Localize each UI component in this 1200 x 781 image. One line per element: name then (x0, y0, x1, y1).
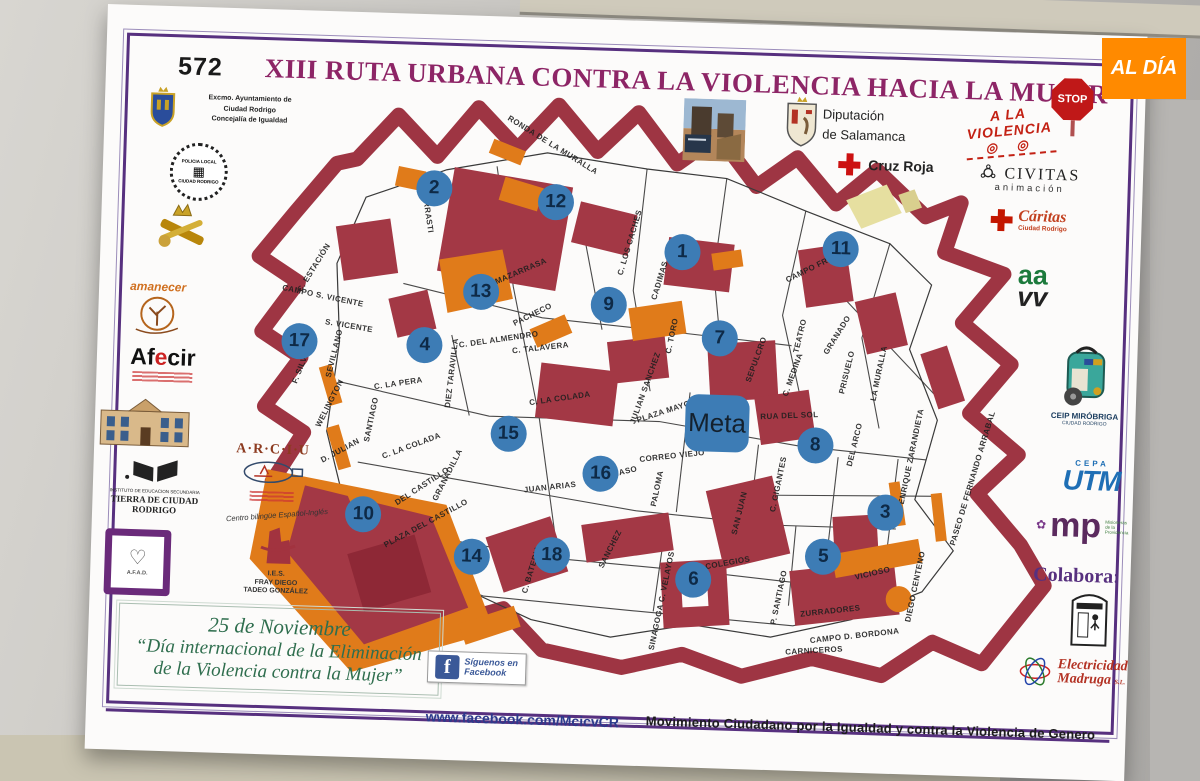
checkpoint-number: 15 (497, 422, 519, 445)
city-photo-thumbnail (681, 98, 747, 167)
caritas-cross-icon (990, 209, 1013, 232)
ship-in-bottle-icon (240, 457, 305, 485)
electricidad-madruga-logo: Electricidad Madruga S.L. (1017, 655, 1128, 690)
afad-label: A.F.A.D. (127, 570, 148, 577)
colabora-label: Colabora: (1033, 563, 1120, 588)
meta-finish-marker: Meta (684, 394, 750, 453)
amanecer-tree-icon (134, 295, 181, 336)
electricidad-line2: Madruga (1057, 671, 1111, 688)
checkpoint-number: 3 (880, 502, 891, 524)
colabora-heading: Colabora: (1026, 563, 1127, 589)
red-cross-icon (838, 153, 861, 176)
atom-icon (1017, 655, 1053, 688)
table-surface-right (1150, 100, 1200, 781)
facebook-icon: f (435, 655, 460, 680)
checkpoint-number: 16 (590, 462, 612, 485)
aldia-label: AL DÍA (1111, 57, 1177, 80)
checkpoint-number: 8 (810, 434, 821, 456)
caritas-line1: Cáritas (1018, 209, 1067, 227)
aavv-logo: aa vv (992, 264, 1073, 310)
stop-sign-post (1070, 120, 1075, 136)
facebook-follow-badge: f Síguenos en Facebook (427, 650, 526, 685)
checkpoint-number: 6 (688, 569, 699, 591)
school-building-logo (94, 396, 196, 455)
ceip-mirobriga-logo: CEIP MIRÓBRIGA CIUDAD RODRIGO (1045, 344, 1126, 429)
poster-number: 572 (178, 52, 224, 82)
guardia-civil-emblem (148, 198, 214, 269)
open-book-icon (123, 457, 188, 485)
mp-smallprint: Misioneras de la Providencia (1105, 519, 1132, 536)
caritas-logo: Cáritas Ciudad Rodrigo (963, 207, 1094, 235)
afecir-smallprint (132, 371, 192, 383)
ayuntamiento-label: Excmo. Ayuntamiento de Ciudad Rodrigo Co… (184, 92, 315, 128)
checkpoint-number: 14 (461, 545, 483, 568)
mp-misioneras-logo: ✿ mp Misioneras de la Providencia (1036, 511, 1133, 541)
meta-label: Meta (688, 407, 747, 440)
caritas-line2: Ciudad Rodrigo (1018, 225, 1067, 234)
checkpoint-number: 4 (419, 334, 430, 356)
policia-local-badge: POLICIA LOCAL ▦ CIUDAD RODRIGO (166, 142, 232, 202)
kiosk-logo (1062, 590, 1116, 655)
policia-line2: CIUDAD RODRIGO (178, 179, 218, 185)
utm-label: UTM (1055, 467, 1128, 494)
amanecer-label: amanecer (130, 279, 186, 295)
afecir-logo: Afecir (107, 342, 218, 384)
checkpoint-number: 13 (470, 280, 492, 303)
checkpoint-number: 2 (429, 177, 440, 199)
ayuntamiento-crest (144, 85, 181, 133)
photo-of-map-poster: { "photo": { "watermark": "AL DÍA" }, "p… (0, 0, 1200, 781)
amanecer-logo: amanecer (111, 276, 203, 343)
checkpoint-number: 11 (831, 238, 852, 261)
afecir-part1: Af (130, 343, 155, 370)
diputacion-label: Diputación de Salamanca (822, 105, 933, 147)
arciu-logo: A·R·C·I·U (228, 441, 316, 503)
arciu-smallprint (249, 491, 293, 502)
checkpoint-number: 10 (352, 503, 374, 526)
aldia-watermark: AL DÍA (1102, 38, 1186, 99)
date-announcement: 25 de Noviembre “Día internacional de la… (117, 603, 441, 696)
ies-fray-diego-logo: I.E.S. FRAY DIEGO TADEO GONZÁLEZ (236, 522, 318, 597)
checkpoint-number: 18 (541, 544, 563, 567)
electricidad-line3: S.L. (1114, 679, 1125, 686)
facebook-line2: Facebook (464, 668, 518, 680)
ies-tierra-logo: INSTITUTO DE EDUCACION SECUNDARIA TIERRA… (98, 456, 212, 517)
checkpoint-number: 7 (714, 327, 725, 349)
heart-icon: ♡ (128, 547, 147, 571)
diputacion-crest (781, 95, 823, 154)
ies-tierra-line2: TIERRA DE CIUDAD RODRIGO (98, 493, 211, 517)
civitas-logo: 🜛 CIVITAS animación (964, 161, 1095, 197)
civitas-line1: CIVITAS (1004, 165, 1080, 184)
checkpoint-number: 1 (677, 241, 688, 263)
cruz-roja-logo: Cruz Roja (838, 153, 959, 179)
checkpoint-number: 17 (288, 330, 310, 353)
afad-logo: ♡ A.F.A.D. (103, 528, 171, 596)
backpack-icon (1059, 344, 1113, 408)
aavv-line2: vv (992, 286, 1073, 310)
checkpoint-number: 12 (545, 191, 567, 214)
fray-building-icon (256, 523, 297, 566)
cat-icon: 🜛 (980, 161, 999, 182)
afecir-part3: cir (167, 344, 196, 371)
checkpoint-number: 5 (818, 546, 829, 568)
checkpoint-number: 9 (603, 294, 614, 316)
cepa-utm-logo: CEPA UTM (1055, 458, 1128, 495)
cruz-roja-label: Cruz Roja (868, 157, 934, 175)
mp-label: mp (1050, 512, 1102, 541)
flower-icon: ✿ (1036, 518, 1046, 532)
diputacion-line2: de Salamanca (822, 124, 933, 147)
map-poster-paper: 572 XIII RUTA URBANA CONTRA LA VIOLENCIA… (85, 4, 1148, 781)
